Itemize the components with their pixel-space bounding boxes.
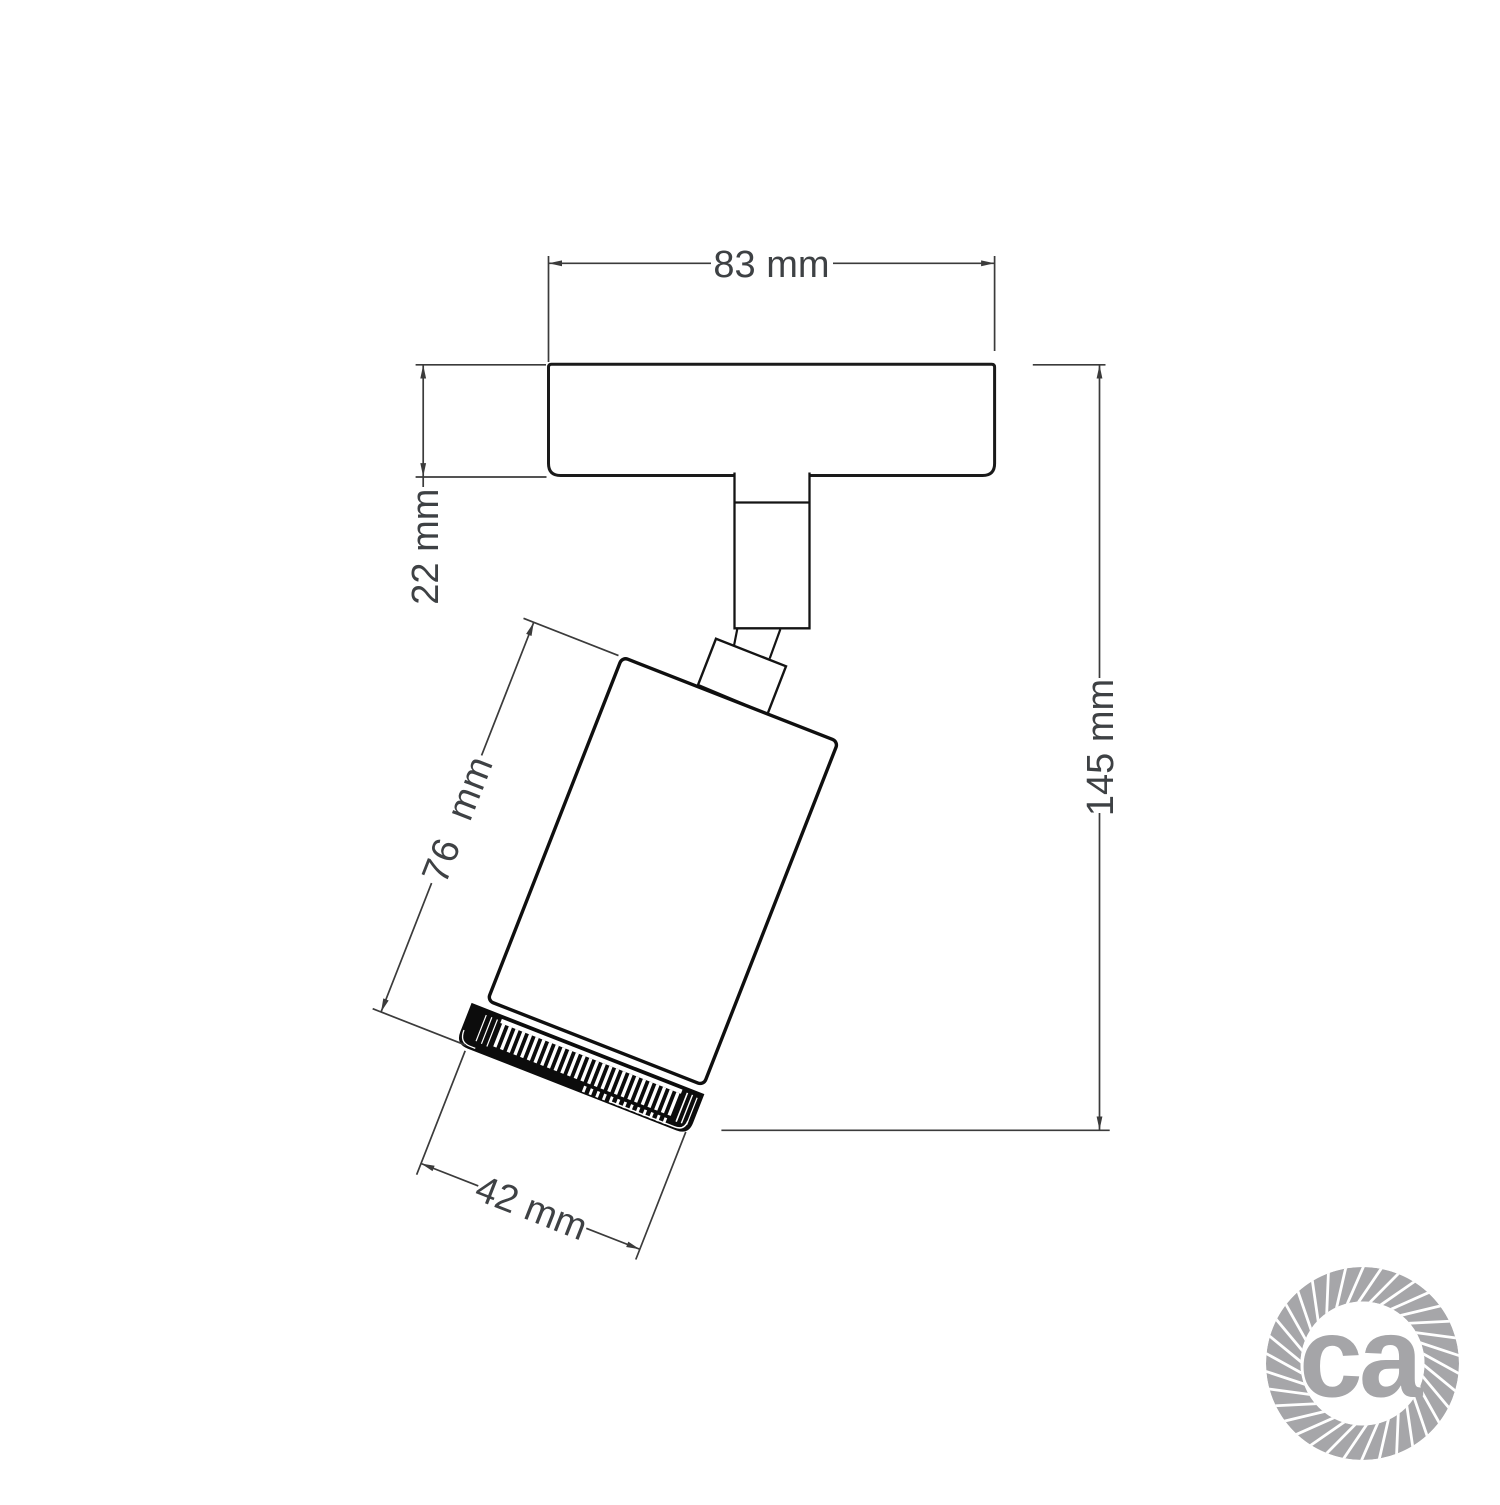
svg-text:83 mm: 83 mm	[713, 244, 829, 286]
svg-text:145 mm: 145 mm	[1080, 679, 1122, 816]
svg-text:ca: ca	[1299, 1295, 1424, 1422]
svg-text:22 mm: 22 mm	[405, 489, 447, 605]
